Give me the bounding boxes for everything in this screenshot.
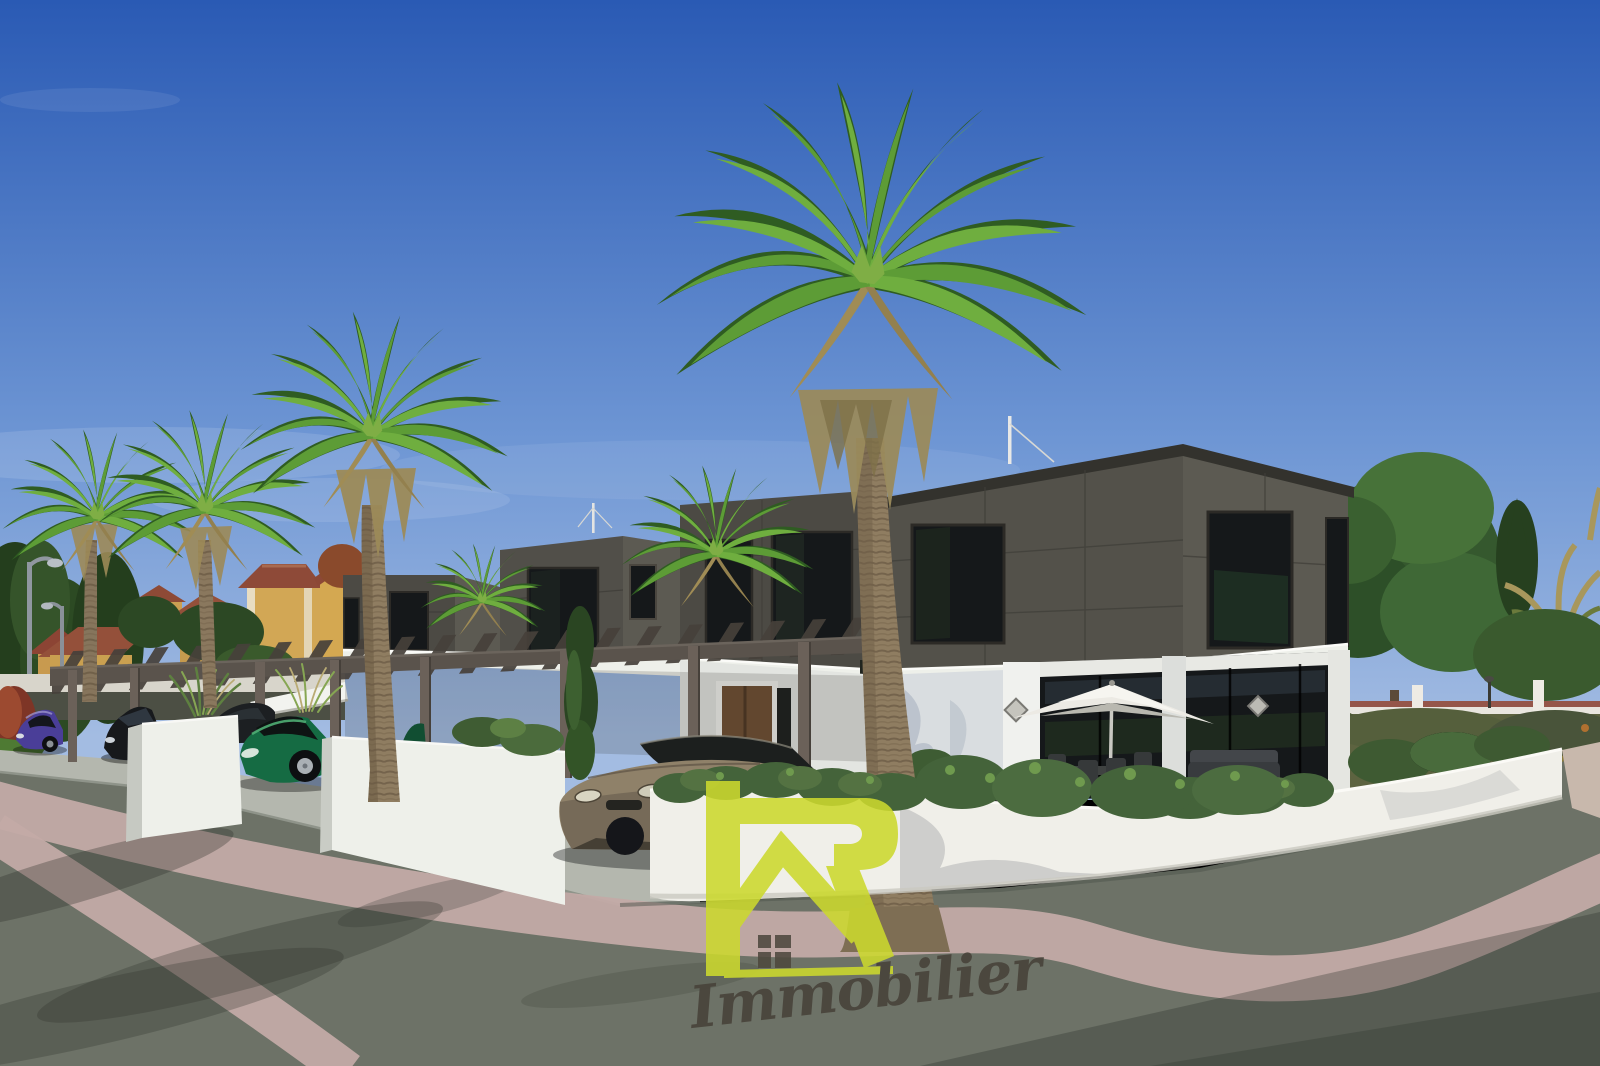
- render-image: Immobilier: [0, 0, 1600, 1066]
- window: [630, 565, 656, 619]
- headlight: [105, 737, 115, 743]
- headlight: [16, 734, 24, 739]
- wheel: [606, 817, 644, 855]
- grille: [606, 800, 642, 810]
- window: [1326, 518, 1348, 646]
